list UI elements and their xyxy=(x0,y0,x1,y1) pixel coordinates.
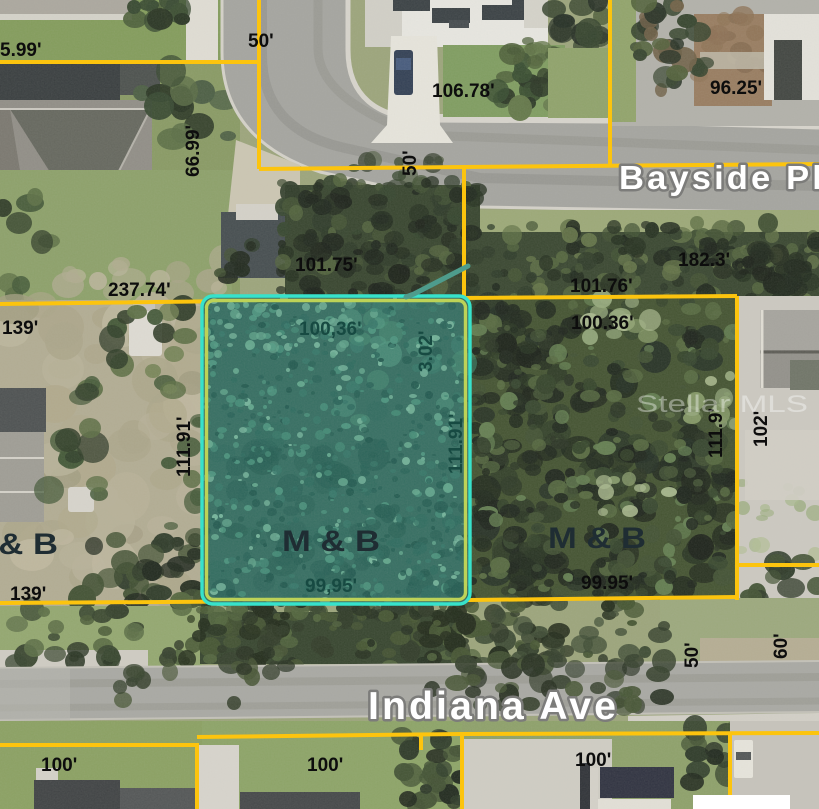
svg-text:101.75': 101.75' xyxy=(295,255,358,276)
svg-text:106.78': 106.78' xyxy=(432,81,495,102)
svg-text:111.91': 111.91' xyxy=(174,416,195,477)
svg-text:237.74': 237.74' xyxy=(108,280,171,301)
svg-text:100': 100' xyxy=(41,755,77,776)
svg-text:Indiana Ave: Indiana Ave xyxy=(368,685,619,728)
svg-text:99,95': 99,95' xyxy=(305,576,357,597)
svg-text:139': 139' xyxy=(10,584,46,605)
svg-text:100': 100' xyxy=(307,755,343,776)
svg-text:111.91': 111.91' xyxy=(446,413,467,474)
svg-text:100,36': 100,36' xyxy=(299,319,362,340)
svg-text:M & B: M & B xyxy=(548,522,646,555)
svg-text:M & B: M & B xyxy=(0,528,58,561)
svg-text:60': 60' xyxy=(771,633,792,659)
svg-text:99.95': 99.95' xyxy=(581,573,633,594)
svg-text:182.3': 182.3' xyxy=(678,250,730,271)
svg-text:3.02': 3.02' xyxy=(416,331,437,373)
svg-text:100': 100' xyxy=(575,750,611,771)
svg-text:M & B: M & B xyxy=(282,525,380,558)
svg-text:50': 50' xyxy=(248,31,274,52)
svg-text:Stellar MLS: Stellar MLS xyxy=(636,391,808,418)
svg-text:50': 50' xyxy=(682,642,703,668)
svg-text:66.99': 66.99' xyxy=(183,125,204,177)
svg-text:101.76': 101.76' xyxy=(570,276,633,297)
svg-text:Bayside Pl: Bayside Pl xyxy=(619,159,819,196)
svg-text:139': 139' xyxy=(2,318,38,339)
svg-text:100.36': 100.36' xyxy=(571,313,634,334)
svg-text:5.99': 5.99' xyxy=(0,40,42,61)
svg-text:96.25': 96.25' xyxy=(710,78,762,99)
svg-text:50': 50' xyxy=(400,150,421,176)
